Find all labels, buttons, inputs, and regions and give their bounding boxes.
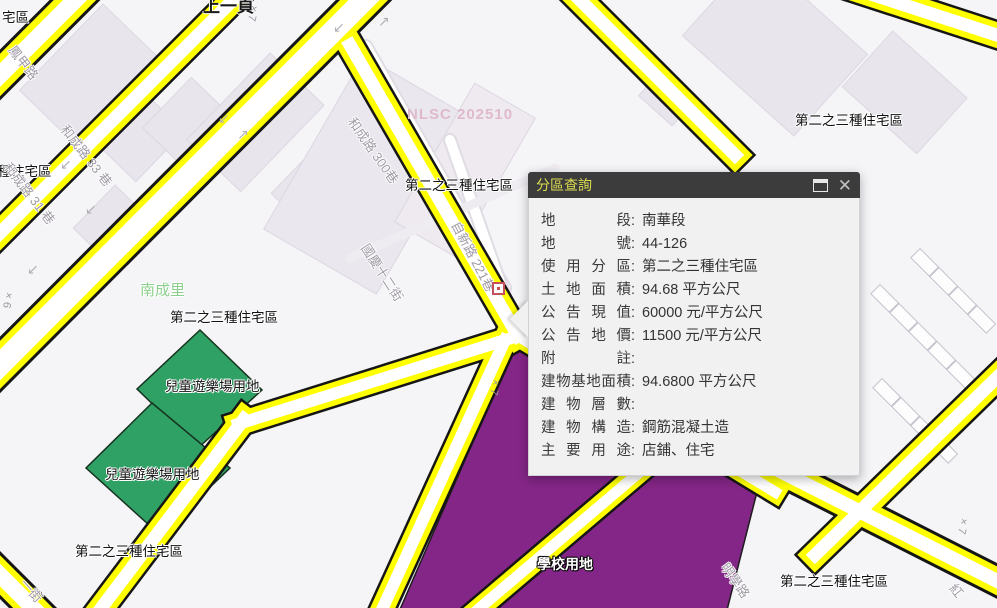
village-label: 南成里: [140, 279, 185, 300]
field-main-use: 主要用途:店鋪、住宅: [541, 440, 845, 463]
zone-label: 第二之三種住宅區: [75, 540, 183, 560]
one-way-arrow-icon: ↗: [378, 13, 390, 30]
field-announced-current-value: 公告現值:60000 元/平方公尺: [541, 302, 845, 325]
popup-titlebar[interactable]: 分區查詢 ✕: [528, 172, 860, 198]
zone-label: 第二之三種住宅區: [405, 174, 513, 194]
zone-label: 第二之三種住宅區: [170, 306, 278, 326]
zone-query-popup: 分區查詢 ✕ 地段:南華段 地號:44-126 使用分區:第二之三種住宅區 土地…: [528, 172, 860, 476]
school-land-label: 學校用地: [537, 554, 593, 574]
playground-label: 兒童遊樂場用地: [165, 375, 260, 395]
field-building-structure: 建物構造:鋼筋混凝土造: [541, 417, 845, 440]
map-watermark: NLSC 202510: [407, 106, 513, 123]
field-zoning: 使用分區:第二之三種住宅區: [541, 256, 845, 279]
field-note: 附註:: [541, 348, 845, 371]
zone-label: 第二之三種住宅區: [780, 570, 888, 590]
popup-body: 地段:南華段 地號:44-126 使用分區:第二之三種住宅區 土地面積:94.6…: [528, 198, 860, 476]
one-way-arrow-icon: ↙: [60, 156, 72, 173]
field-land-area: 土地面積:94.68 平方公尺: [541, 279, 845, 302]
one-way-arrow-icon: ↙: [27, 261, 39, 278]
popup-title: 分區查詢: [536, 175, 813, 195]
zone-label-partial: 宅區: [2, 6, 29, 26]
playground-label: 兒童遊樂場用地: [105, 463, 200, 483]
field-building-floors: 建物層數:: [541, 394, 845, 417]
maximize-icon[interactable]: [813, 179, 828, 192]
one-way-arrow-icon: ↙: [333, 19, 345, 36]
zone-label: 第二之三種住宅區: [795, 109, 903, 129]
one-way-arrow-icon: ↗: [237, 126, 249, 143]
close-icon[interactable]: ✕: [838, 177, 852, 194]
map-canvas[interactable]: 上一頁 NLSC 202510 第二之三種住宅區 第二之三種住宅區 第二之三種住…: [0, 0, 997, 608]
field-announced-land-price: 公告地價:11500 元/平方公尺: [541, 325, 845, 348]
field-building-base-area: 建物基地面積:94.6800 平方公尺: [541, 371, 845, 394]
field-land-section: 地段:南華段: [541, 210, 845, 233]
one-way-arrow-icon: ↙: [85, 201, 97, 218]
poi-icon: [492, 282, 505, 295]
one-way-arrow-icon: ↙: [218, 110, 230, 127]
field-land-number: 地號:44-126: [541, 233, 845, 256]
